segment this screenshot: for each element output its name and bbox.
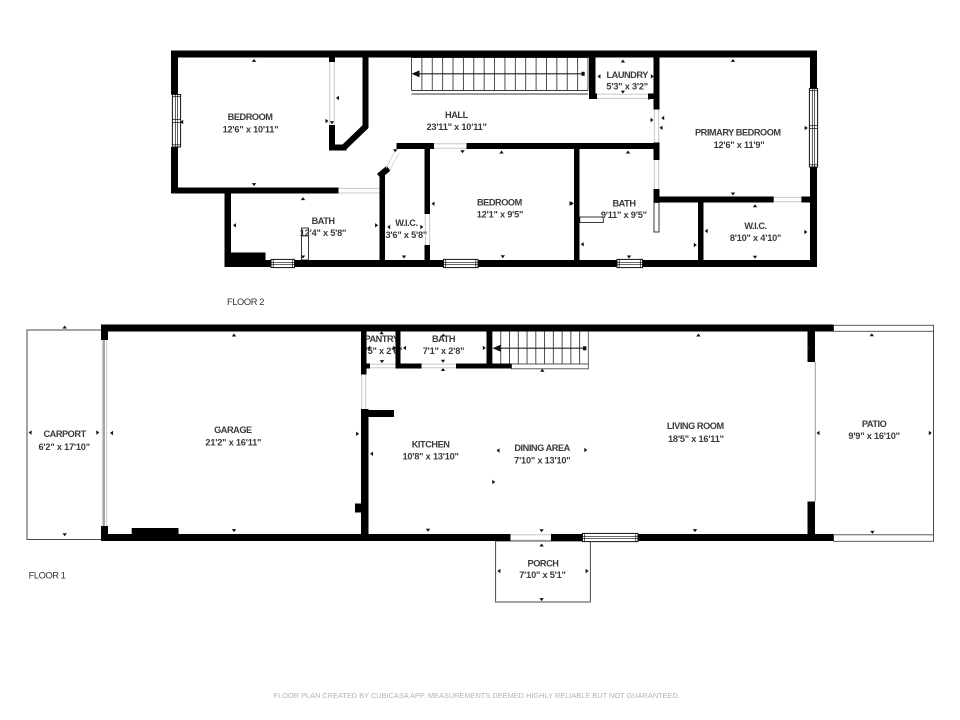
svg-text:12'6" x 11'9": 12'6" x 11'9" [714,140,765,150]
svg-text:BEDROOM: BEDROOM [477,198,523,208]
svg-text:HALL: HALL [445,110,469,120]
svg-text:LIVING ROOM: LIVING ROOM [667,421,725,431]
svg-text:7'10" x 5'1": 7'10" x 5'1" [519,570,565,580]
svg-text:8'10" x 4'10": 8'10" x 4'10" [730,233,781,243]
svg-text:BATH: BATH [312,216,336,226]
svg-text:PANTRY: PANTRY [364,334,398,344]
svg-text:7'10" x 13'10": 7'10" x 13'10" [514,455,570,465]
svg-text:BEDROOM: BEDROOM [228,112,274,122]
svg-text:12'6" x 10'11": 12'6" x 10'11" [223,124,279,134]
svg-text:21'2" x 16'11": 21'2" x 16'11" [205,438,261,448]
svg-text:FLOOR PLAN CREATED BY CUBICASA: FLOOR PLAN CREATED BY CUBICASA APP. MEAS… [273,691,679,700]
svg-text:LAUNDRY: LAUNDRY [606,70,648,80]
svg-text:12'1" x 9'5": 12'1" x 9'5" [477,210,523,220]
svg-text:23'11" x 10'11": 23'11" x 10'11" [427,122,487,132]
svg-text:18'5" x 16'11": 18'5" x 16'11" [668,434,724,444]
svg-text:3'6" x 5'8": 3'6" x 5'8" [386,230,428,240]
svg-text:FLOOR 1: FLOOR 1 [29,570,66,580]
svg-text:KITCHEN: KITCHEN [412,439,450,449]
svg-text:CARPORT: CARPORT [43,429,86,439]
svg-text:W.I.C.: W.I.C. [744,221,766,231]
svg-text:9'11" x 9'5": 9'11" x 9'5" [601,210,647,220]
svg-text:DINING AREA: DINING AREA [514,443,570,453]
svg-text:PORCH: PORCH [528,559,560,569]
svg-text:GARAGE: GARAGE [214,425,252,435]
svg-text:6'2" x 17'10": 6'2" x 17'10" [39,442,90,452]
svg-text:W.I.C.: W.I.C. [395,218,417,228]
svg-text:7'1" x 2'8": 7'1" x 2'8" [423,346,465,356]
svg-text:PATIO: PATIO [862,419,887,429]
svg-text:BATH: BATH [612,199,636,209]
svg-text:12'4" x 5'8": 12'4" x 5'8" [300,228,346,238]
svg-text:5'3" x 3'2": 5'3" x 3'2" [606,81,648,91]
svg-text:FLOOR 2: FLOOR 2 [227,297,264,307]
svg-text:9'9" x 16'10": 9'9" x 16'10" [848,431,899,441]
svg-text:PRIMARY BEDROOM: PRIMARY BEDROOM [695,128,781,138]
svg-text:10'8" x 13'10": 10'8" x 13'10" [402,452,458,462]
